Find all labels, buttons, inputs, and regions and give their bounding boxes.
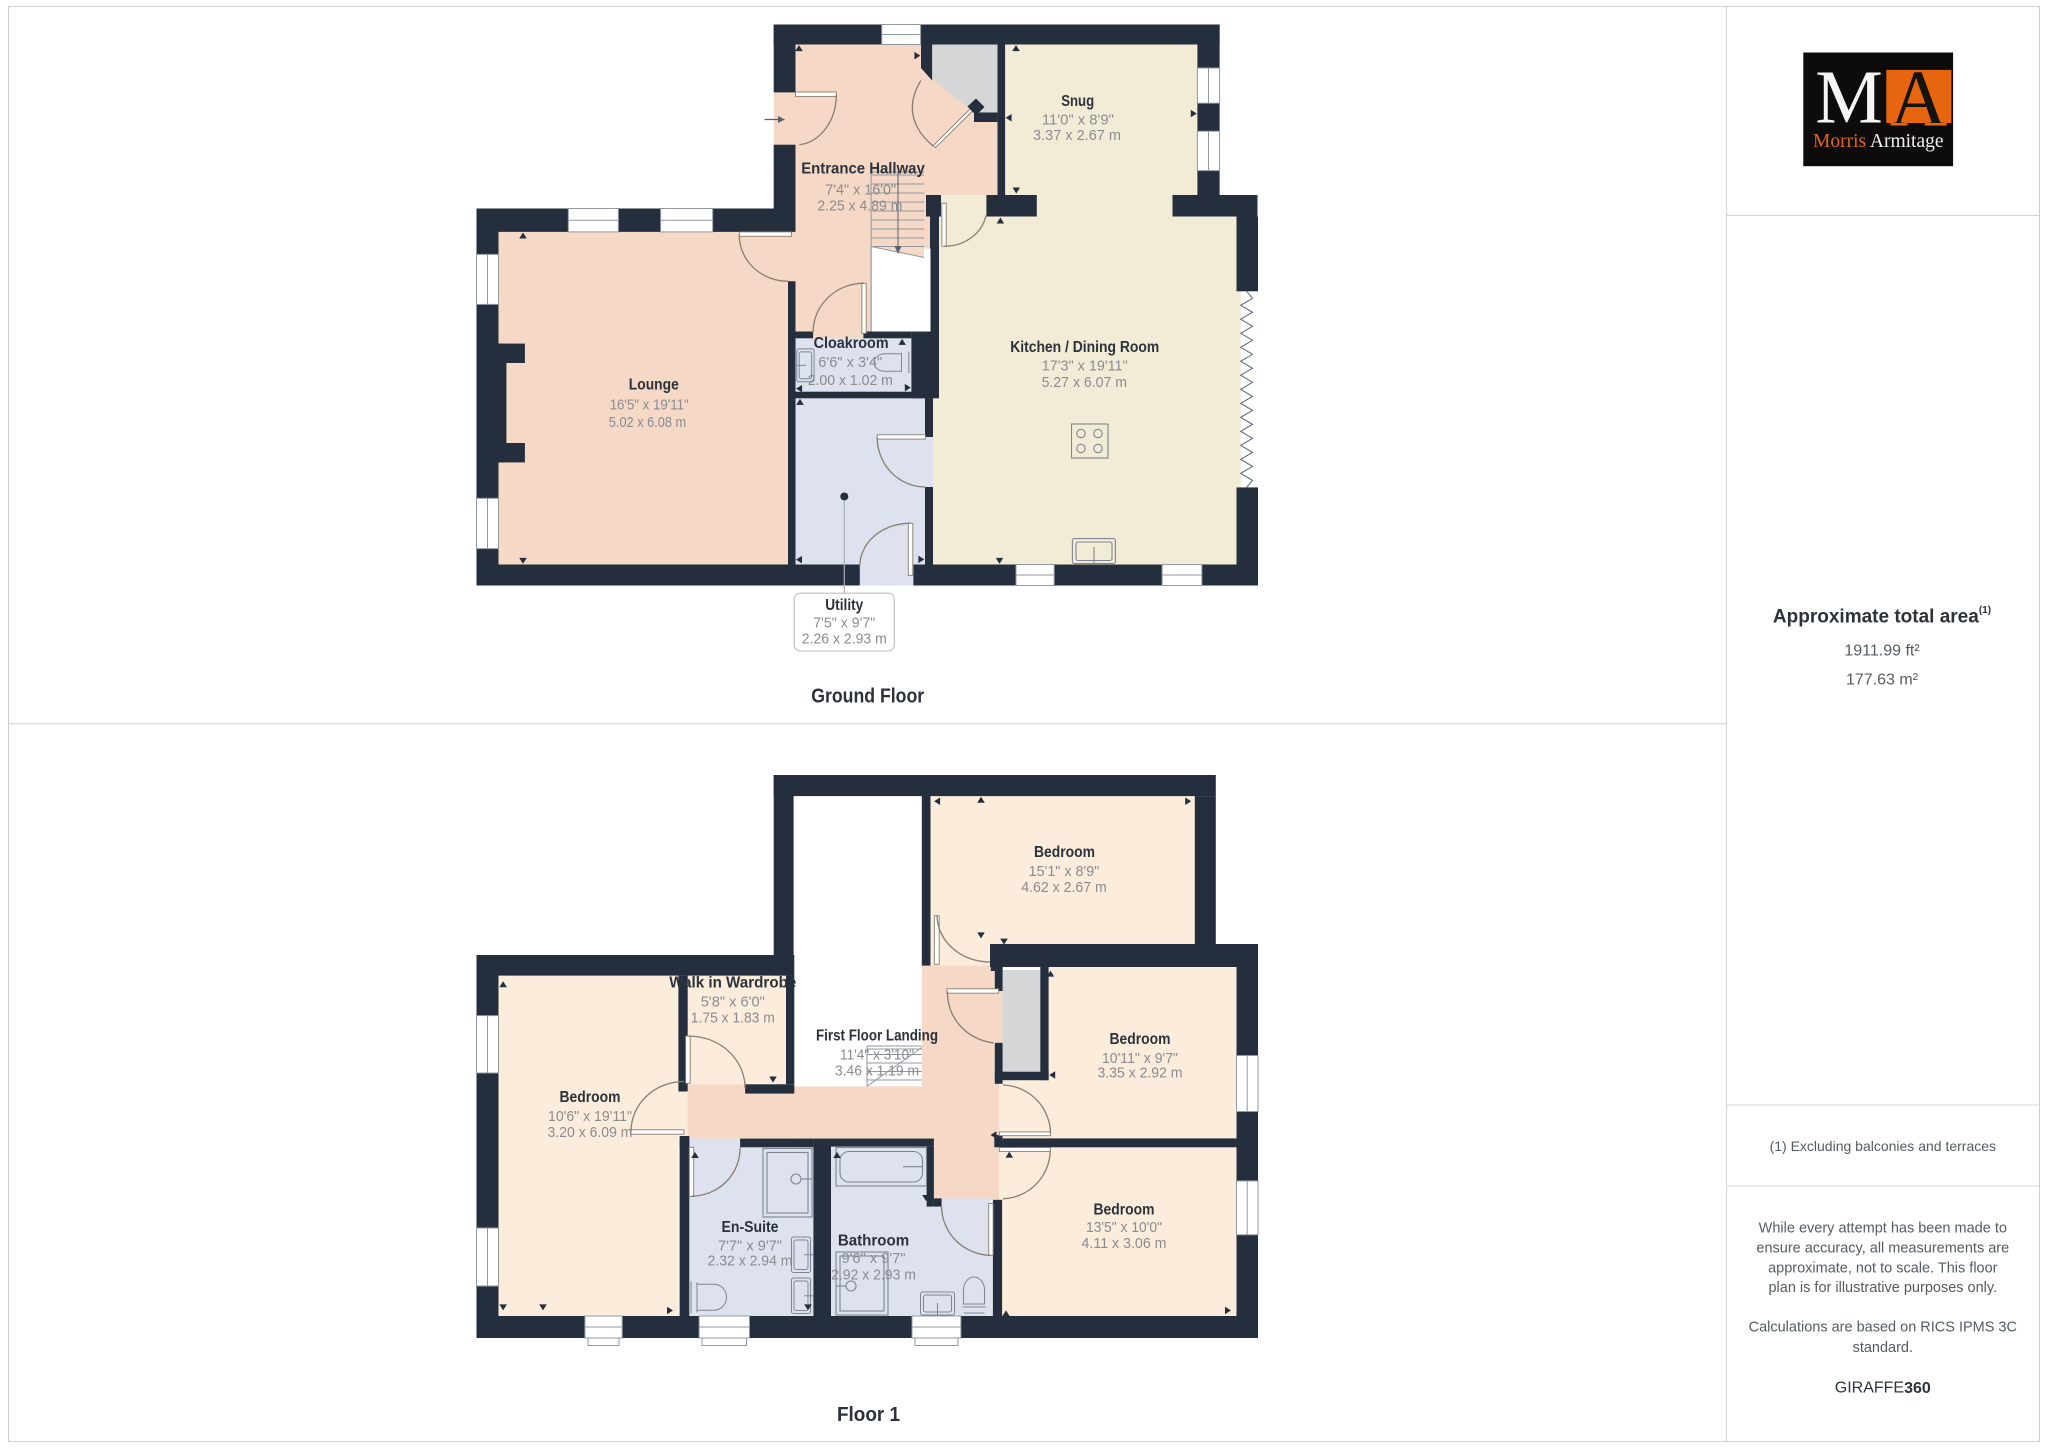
svg-text:5.02 x 6.08 m: 5.02 x 6.08 m [609,414,686,431]
svg-text:Bedroom: Bedroom [560,1089,621,1106]
svg-text:Bedroom: Bedroom [1034,844,1095,861]
svg-text:10'6" x 19'11": 10'6" x 19'11" [548,1108,632,1125]
svg-text:15'1" x 8'9": 15'1" x 8'9" [1029,863,1100,880]
svg-text:Cloakroom: Cloakroom [814,335,889,352]
svg-text:Bathroom: Bathroom [838,1233,909,1250]
svg-text:16'5" x 19'11": 16'5" x 19'11" [610,397,689,414]
svg-text:GIRAFFE360: GIRAFFE360 [1835,1380,1931,1397]
svg-text:3.46 x 1.19 m: 3.46 x 1.19 m [835,1062,919,1079]
svg-text:1.75 x 1.83 m: 1.75 x 1.83 m [691,1009,775,1026]
svg-text:1911.99 ft²: 1911.99 ft² [1844,643,1920,660]
svg-text:Utility: Utility [825,597,863,614]
svg-text:Lounge: Lounge [629,377,679,394]
svg-text:Bedroom: Bedroom [1110,1031,1171,1048]
svg-text:approximate, not to scale. Thi: approximate, not to scale. This floor [1768,1260,1998,1276]
svg-text:Morris Armitage: Morris Armitage [1813,131,1944,152]
svg-text:plan is for illustrative purpo: plan is for illustrative purposes only. [1768,1280,1997,1296]
svg-text:177.63 m²: 177.63 m² [1846,672,1919,689]
svg-text:standard.: standard. [1853,1340,1913,1356]
svg-text:2.25 x 4.89 m: 2.25 x 4.89 m [817,197,902,214]
svg-text:6'6" x 3'4": 6'6" x 3'4" [818,354,882,371]
svg-text:13'5" x 10'0": 13'5" x 10'0" [1086,1219,1162,1236]
svg-text:3.20 x 6.09 m: 3.20 x 6.09 m [548,1124,633,1141]
svg-text:ensure accuracy, all measureme: ensure accuracy, all measurements are [1756,1240,2009,1256]
svg-text:2.92 x 2.93 m: 2.92 x 2.93 m [831,1267,916,1284]
svg-text:Walk in Wardrobe: Walk in Wardrobe [669,975,796,992]
svg-text:11'4" x 3'10": 11'4" x 3'10" [840,1046,914,1063]
svg-text:7'4" x 16'0": 7'4" x 16'0" [825,182,896,199]
svg-text:Entrance Hallway: Entrance Hallway [801,161,925,178]
svg-text:Calculations are based on RICS: Calculations are based on RICS IPMS 3C [1749,1320,2017,1336]
svg-text:17'3" x 19'11": 17'3" x 19'11" [1042,358,1128,375]
svg-text:Bedroom: Bedroom [1094,1201,1155,1218]
svg-text:5'8" x 6'0": 5'8" x 6'0" [701,994,765,1011]
svg-text:Snug: Snug [1061,93,1094,110]
svg-text:2.26 x 2.93 m: 2.26 x 2.93 m [802,630,887,647]
svg-text:2.00 x 1.02 m: 2.00 x 1.02 m [808,372,893,389]
svg-text:7'5" x 9'7": 7'5" x 9'7" [813,614,875,631]
svg-text:En-Suite: En-Suite [722,1219,779,1236]
svg-text:Floor 1: Floor 1 [837,1404,900,1426]
svg-text:While every attempt has been m: While every attempt has been made to [1759,1221,2007,1237]
svg-text:First Floor Landing: First Floor Landing [816,1028,938,1045]
svg-text:4.11 x 3.06 m: 4.11 x 3.06 m [1082,1235,1167,1252]
svg-text:3.37 x 2.67 m: 3.37 x 2.67 m [1033,127,1121,144]
svg-text:5.27 x 6.07 m: 5.27 x 6.07 m [1042,374,1127,391]
svg-text:Ground Floor: Ground Floor [811,686,924,708]
svg-text:Approximate total area(1): Approximate total area(1) [1773,605,1991,628]
svg-text:4.62 x 2.67 m: 4.62 x 2.67 m [1021,879,1107,896]
svg-text:3.35 x 2.92 m: 3.35 x 2.92 m [1098,1065,1183,1082]
svg-text:M: M [1815,56,1883,140]
svg-text:Kitchen / Dining Room: Kitchen / Dining Room [1010,339,1159,356]
svg-text:(1) Excluding balconies and te: (1) Excluding balconies and terraces [1770,1138,1996,1154]
svg-text:2.32 x 2.94 m: 2.32 x 2.94 m [708,1253,793,1270]
svg-text:9'6" x 9'7": 9'6" x 9'7" [842,1250,906,1267]
